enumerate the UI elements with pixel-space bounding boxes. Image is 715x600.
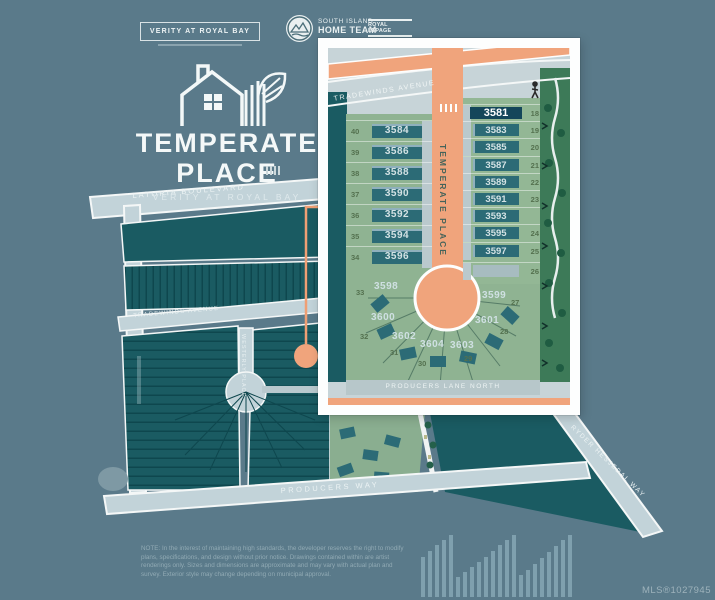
lot-number: 37 (351, 190, 359, 199)
lot-row: 373590 (346, 183, 432, 205)
driveway (463, 174, 471, 191)
lot-number: 19 (531, 126, 539, 135)
lot-address: 3592 (372, 209, 422, 220)
driveway (463, 243, 471, 260)
lot-row: 3593 (463, 207, 540, 225)
lot-number: 27 (511, 298, 519, 307)
lot-number: 31 (390, 348, 398, 357)
lot-row: 359123 (463, 190, 540, 208)
lot-number: 21 (531, 161, 539, 170)
deco-bar-graphic (421, 533, 572, 597)
lot-number: 33 (356, 288, 364, 297)
mls-number: MLS®1027945 (642, 585, 711, 596)
driveway (422, 121, 432, 142)
lot-row: 343596 (346, 246, 432, 268)
brokerage-name: ROYAL LEPAGE (368, 22, 412, 34)
lot-address: 3593 (471, 211, 521, 222)
lot-number: 18 (531, 109, 539, 118)
driveway (463, 208, 471, 225)
lot-number: 34 (351, 253, 359, 262)
lot-address: 3587 (471, 160, 521, 171)
lot-row: 358319 (463, 121, 540, 139)
house-shell-logo-icon (158, 50, 288, 130)
street-label-temperate-place: TEMPERATE PLACE (438, 144, 448, 284)
driveway (463, 157, 471, 174)
lot-address: 3595 (471, 228, 521, 239)
lot-number: 32 (360, 332, 368, 341)
lot-number: 30 (418, 359, 426, 368)
lot-address: 3598 (374, 281, 398, 292)
lot-address: 3600 (371, 312, 395, 323)
home-team-logo-icon (286, 15, 313, 42)
lot-address: 3599 (482, 290, 506, 301)
lot-row: 26 (463, 262, 540, 280)
lot-row: 358922 (463, 173, 540, 191)
lot-number: 28 (500, 327, 508, 336)
lot-number: 40 (351, 127, 359, 136)
driveway (422, 205, 432, 226)
lot-address: 3596 (372, 251, 422, 262)
lot-address: 3584 (372, 125, 422, 136)
lot-address: 3588 (372, 167, 422, 178)
detail-inset-map: 403584 393586 383588 373590 363592 35359… (318, 38, 580, 415)
lot-row: 359524 (463, 224, 540, 242)
street-label-producers-lane: PRODUCERS LANE NORTH (346, 383, 540, 390)
driveway (422, 226, 432, 247)
lot-number: 38 (351, 169, 359, 178)
lot-address: 3581 (471, 107, 521, 119)
faint-street-label (137, 356, 141, 404)
brokerage-rule (368, 19, 412, 21)
lot-number: 35 (351, 232, 359, 241)
lot-address: 3597 (471, 246, 521, 257)
lot-number: 26 (531, 267, 539, 276)
driveway (463, 263, 471, 280)
brokerage-rule (368, 35, 412, 37)
driveway (422, 247, 432, 268)
lot-row: 353594 (346, 225, 432, 247)
lot-block (122, 326, 240, 490)
pedestrian-icon (532, 82, 538, 98)
lot-address: 3590 (372, 188, 422, 199)
lot-number: 25 (531, 247, 539, 256)
lot-row: 363592 (346, 204, 432, 226)
lot-address: 3591 (471, 194, 521, 205)
driveway (422, 184, 432, 205)
lot-row: 359725 (463, 242, 540, 260)
lot-row: 358520 (463, 138, 540, 156)
title-line1: TEMPERATE (112, 128, 342, 158)
deco-ticks (266, 166, 280, 175)
lot-row: 358721 (463, 156, 540, 174)
driveway (463, 225, 471, 242)
lot-address: 3586 (372, 146, 422, 157)
lot-address: 3601 (475, 315, 499, 326)
site-plan-page: LATORIA BOULEVARD TRADEWINDS AVENUE WEST… (0, 0, 715, 600)
house-footprint (430, 356, 446, 367)
driveway (422, 163, 432, 184)
verity-badge-subline (158, 44, 242, 46)
page-subtitle: VERITY AT ROYAL BAY (112, 192, 342, 202)
house-footprint (473, 265, 519, 277)
lot-address: 3602 (392, 331, 416, 342)
lot-number: 36 (351, 211, 359, 220)
lot-address: 3594 (372, 230, 422, 241)
lot-number: 23 (531, 195, 539, 204)
page-title: TEMPERATE PLACE (112, 128, 342, 188)
lot-number: 20 (531, 143, 539, 152)
driveway (463, 122, 471, 139)
inset-content: 403584 393586 383588 373590 363592 35359… (328, 48, 570, 405)
title-line2: PLACE (112, 158, 342, 188)
lot-number: 29 (464, 354, 472, 363)
driveway (463, 191, 471, 208)
street-label-westerly: WESTERLY PLACE (240, 334, 246, 404)
driveway (422, 142, 432, 163)
lot-number: 22 (531, 178, 539, 187)
lot-row: 383588 (346, 162, 432, 184)
driveway (463, 139, 471, 156)
lot-address: 3604 (420, 339, 444, 350)
lot-row: 393586 (346, 141, 432, 163)
lot-address: 3585 (471, 142, 521, 153)
lot-number: 24 (531, 229, 539, 238)
verity-badge: VERITY AT ROYAL BAY (140, 22, 260, 41)
lot-row-highlighted: 358118 (463, 104, 540, 122)
lot-row: 403584 (346, 120, 432, 142)
lot-address: 3589 (471, 177, 521, 188)
pond (98, 467, 128, 491)
lot-address: 3583 (471, 125, 521, 136)
lot-number: 39 (351, 148, 359, 157)
locator-dot (294, 344, 318, 368)
lot-address: 3603 (450, 340, 474, 351)
